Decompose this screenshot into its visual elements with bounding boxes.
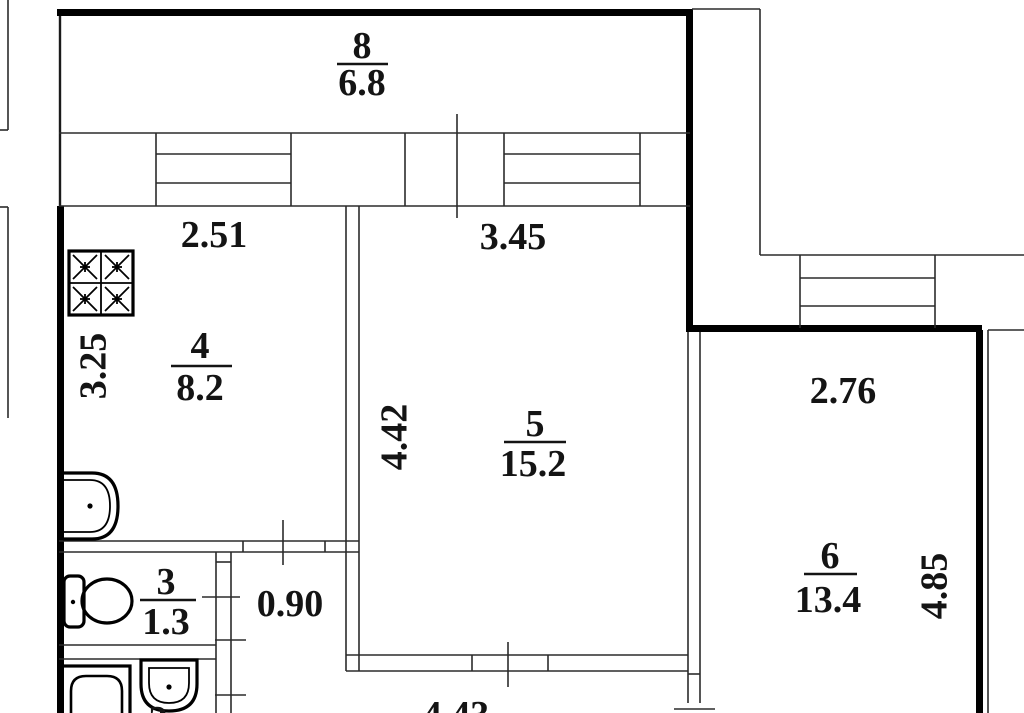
neighbor-wall-left [0,0,8,418]
dim-living-width: 3.45 [480,216,547,258]
balcony-window-band [59,114,690,218]
wall-bedroom-top [686,325,982,332]
room-balcony-area: 6.8 [338,62,386,104]
room-bathroom-number-partial: 2 [149,699,168,713]
dim-living-bottom-width: 4.43 [423,694,490,713]
room-balcony-number: 8 [353,25,372,67]
room-kitchen-number: 4 [191,325,210,367]
room-kitchen-area: 8.2 [176,367,224,409]
dim-kitchen-depth: 3.25 [73,333,115,400]
room-living-number: 5 [526,403,545,445]
room-living [346,642,688,687]
room-bedroom-area: 13.4 [795,579,862,621]
dim-kitchen-width: 2.51 [181,214,248,256]
wall-right-upper [686,9,693,330]
room-living-area: 15.2 [500,443,567,485]
room-bathroom [62,660,197,713]
wall-bedroom-right [976,330,983,713]
dim-bedroom-width: 2.76 [810,370,877,412]
room-wc-number: 3 [157,561,176,603]
kitchen-sink-icon [64,473,118,539]
dim-door-opening: 0.90 [257,583,324,625]
labels: 8 6.8 2.51 3.45 3.25 4 8.2 4.42 5 15.2 3… [73,25,956,713]
dim-living-depth: 4.42 [374,404,416,471]
dim-bedroom-depth: 4.85 [914,553,956,620]
wall-living-bedroom [674,332,715,709]
bathtub-icon [62,666,130,713]
wall-top [57,9,692,16]
wall-left [57,206,64,713]
window-right [504,154,640,183]
stove-icon [69,251,133,315]
floor-plan-drawing: 8 6.8 2.51 3.45 3.25 4 8.2 4.42 5 15.2 3… [0,0,1024,713]
neighbor-balcony-topright [692,9,1024,330]
floor-plan-page: 8 6.8 2.51 3.45 3.25 4 8.2 4.42 5 15.2 3… [0,0,1024,713]
window-left [156,154,291,183]
room-bedroom-number: 6 [821,535,840,577]
toilet-icon [64,576,132,627]
room-wc-area: 1.3 [142,601,190,643]
window-neighbor [800,278,935,306]
